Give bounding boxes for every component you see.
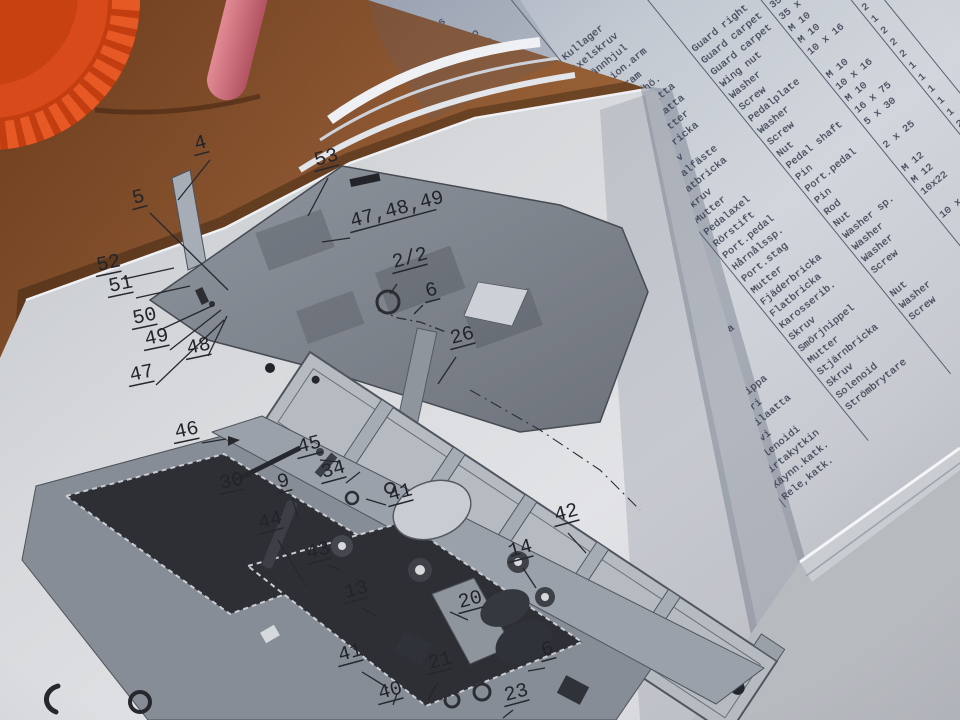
photo-of-open-parts-manual: 453552515049484747,48,492/26264630453494… (0, 0, 960, 720)
diagram-callout: 46 (173, 417, 201, 444)
diagram-callout: 47 (128, 360, 156, 387)
diagram-callout: 30 (218, 468, 246, 495)
diagram-callout: 48 (185, 333, 213, 360)
diagram-callout: 51 (107, 271, 135, 298)
diagram-callout: 49 (143, 324, 171, 351)
